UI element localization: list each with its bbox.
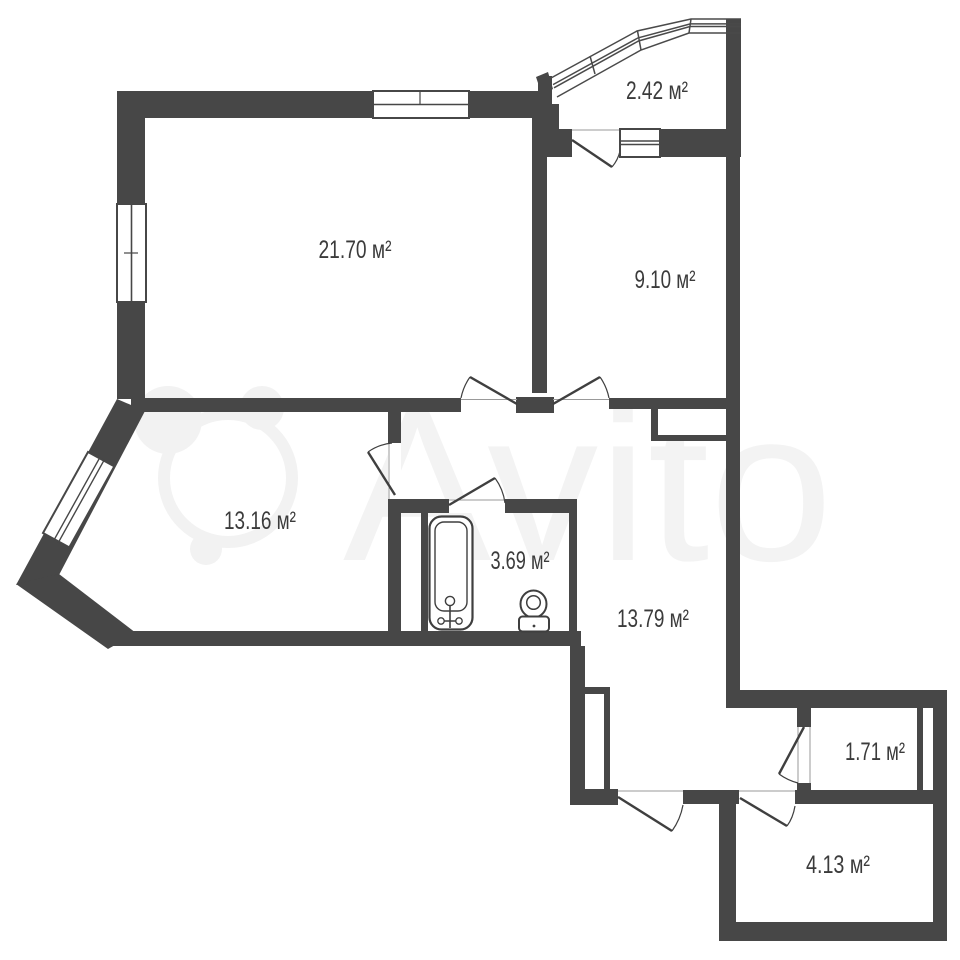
svg-text:1.71 м²: 1.71 м² <box>845 738 905 766</box>
svg-text:13.16 м²: 13.16 м² <box>224 507 296 535</box>
svg-text:13.79 м²: 13.79 м² <box>617 605 689 633</box>
svg-text:3.69 м²: 3.69 м² <box>491 547 550 575</box>
svg-text:9.10 м²: 9.10 м² <box>635 266 696 294</box>
svg-text:4.13 м²: 4.13 м² <box>806 851 870 879</box>
svg-text:21.70 м²: 21.70 м² <box>319 236 392 264</box>
svg-text:2.42 м²: 2.42 м² <box>626 77 688 105</box>
